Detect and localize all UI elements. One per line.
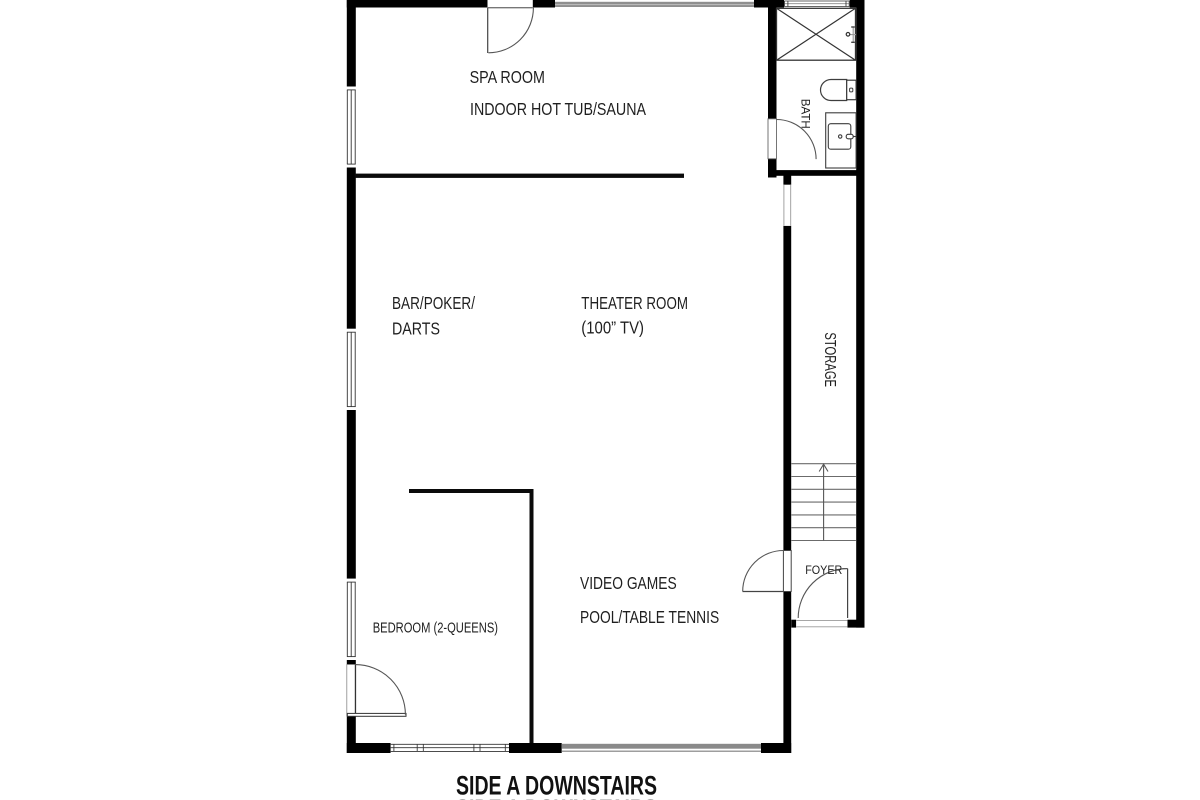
svg-text:STORAGE: STORAGE [821,332,838,387]
svg-text:BEDROOM (2-QUEENS): BEDROOM (2-QUEENS) [373,621,498,637]
svg-text:SPA ROOM: SPA ROOM [470,67,545,87]
svg-text:DARTS: DARTS [392,318,440,338]
svg-text:INDOOR HOT TUB/SAUNA: INDOOR HOT TUB/SAUNA [470,99,646,119]
svg-text:BAR/POKER/: BAR/POKER/ [392,293,475,313]
svg-text:VIDEO GAMES: VIDEO GAMES [580,573,677,593]
svg-text:(100” TV): (100” TV) [581,318,644,338]
svg-text:BATH: BATH [799,99,813,129]
svg-text:SIDE A DOWNSTAIRS: SIDE A DOWNSTAIRS [456,794,657,800]
svg-text:POOL/TABLE TENNIS: POOL/TABLE TENNIS [580,607,719,627]
svg-text:THEATER ROOM: THEATER ROOM [581,293,688,313]
svg-text:FOYER: FOYER [805,564,842,577]
